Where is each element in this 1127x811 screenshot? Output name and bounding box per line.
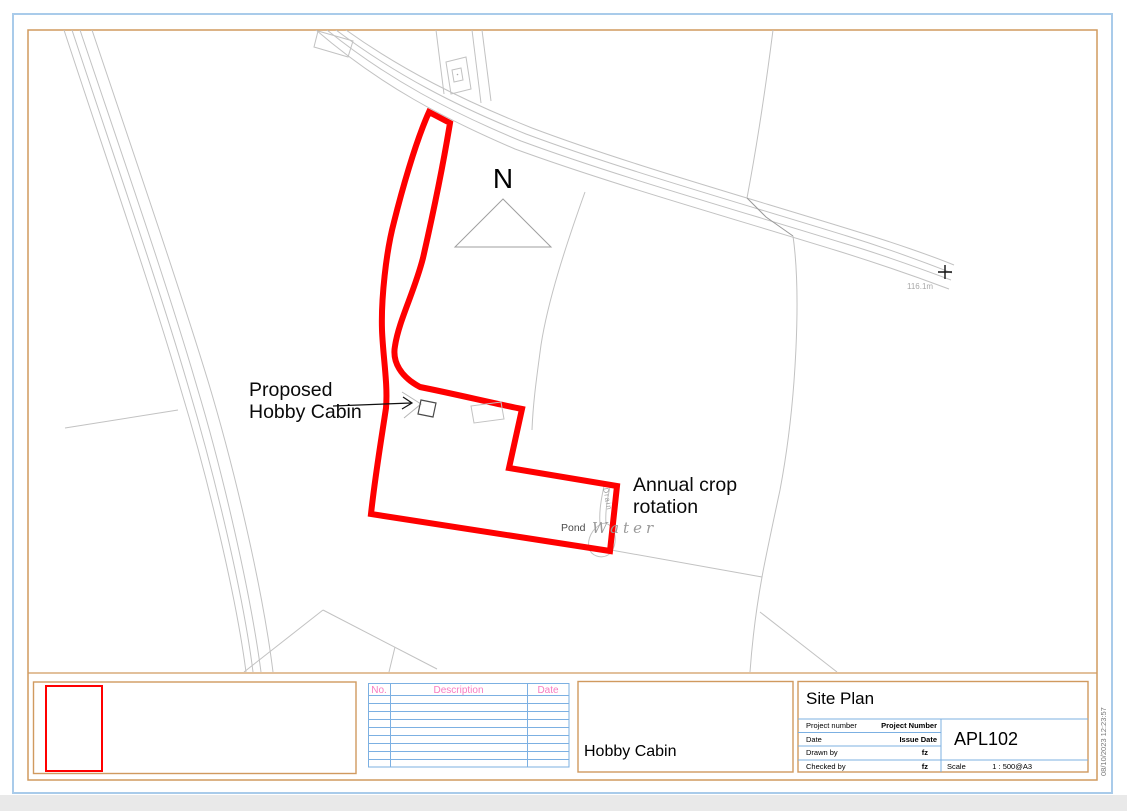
field-boundary — [65, 410, 178, 428]
proposed-cabin-label: Proposed Hobby Cabin — [249, 380, 362, 423]
titleblock-row-drawn-by: Drawn by fz — [806, 748, 928, 757]
logo-placeholder — [46, 686, 102, 771]
field-boundary — [760, 612, 837, 672]
field-boundary — [389, 647, 395, 672]
north-arrow-triangle — [455, 199, 551, 247]
sheet-border — [28, 30, 1097, 780]
field-value: Issue Date — [899, 735, 937, 744]
track — [436, 30, 444, 94]
proposed-cabin-label-line2: Hobby Cabin — [249, 402, 362, 424]
crop-rotation-label-line1: Annual crop — [633, 475, 737, 497]
left-road — [64, 30, 246, 672]
left-road — [72, 30, 253, 672]
top-road — [346, 30, 954, 265]
crop-rotation-label-line2: rotation — [633, 497, 737, 519]
revision-table-grid — [369, 684, 570, 768]
scale-row: Scale 1 : 500@A3 — [947, 762, 1032, 771]
top-road — [327, 30, 951, 280]
titleblock-row-project-number: Project number Project Number — [806, 721, 937, 730]
field-value: fz — [922, 748, 928, 757]
map-linework — [64, 30, 954, 672]
field-value: fz — [922, 762, 928, 771]
proposed-cabin-outline — [418, 400, 436, 417]
project-name: Hobby Cabin — [584, 743, 677, 761]
north-label: N — [489, 163, 517, 195]
parcel-outline — [446, 57, 471, 94]
map-dot — [457, 74, 459, 76]
revision-col-date: Date — [527, 685, 569, 696]
field-label: Drawn by — [806, 748, 838, 757]
titleblock-row-date: Date Issue Date — [806, 735, 937, 744]
water-label: Water — [592, 519, 657, 537]
field-label: Project number — [806, 721, 857, 730]
field-boundary — [750, 236, 797, 672]
field-boundary — [611, 550, 762, 577]
left-road — [80, 30, 261, 672]
field-boundary — [323, 610, 437, 669]
spot-height-cross — [938, 265, 952, 279]
proposed-cabin-label-line1: Proposed — [249, 380, 362, 402]
scale-value: 1 : 500@A3 — [992, 762, 1032, 771]
app-background — [0, 795, 1127, 811]
field-label: Date — [806, 735, 822, 744]
field-boundary — [747, 30, 773, 198]
track — [482, 30, 491, 101]
spot-height-label: 116.1m — [907, 282, 933, 291]
logo-box — [34, 682, 357, 774]
titleblock-row-checked-by: Checked by fz — [806, 762, 928, 771]
sheet-number: APL102 — [954, 729, 1018, 750]
field-boundary — [532, 192, 585, 430]
field-boundary — [244, 610, 323, 672]
view-title: Site Plan — [806, 689, 874, 709]
field-value: Project Number — [881, 721, 937, 730]
pond-label: Pond — [561, 522, 586, 534]
scale-label: Scale — [947, 762, 966, 771]
field-label: Checked by — [806, 762, 846, 771]
drawing-sheet: N Proposed Hobby Cabin Annual crop rotat… — [0, 0, 1127, 811]
left-road — [92, 30, 273, 672]
crop-rotation-label: Annual crop rotation — [633, 475, 737, 518]
revision-col-no: No. — [368, 685, 390, 696]
revision-col-description: Description — [390, 685, 527, 696]
track — [472, 30, 481, 103]
plot-stamp: 08/10/2023 12:23:57 — [1099, 707, 1108, 776]
page-border — [13, 14, 1112, 793]
